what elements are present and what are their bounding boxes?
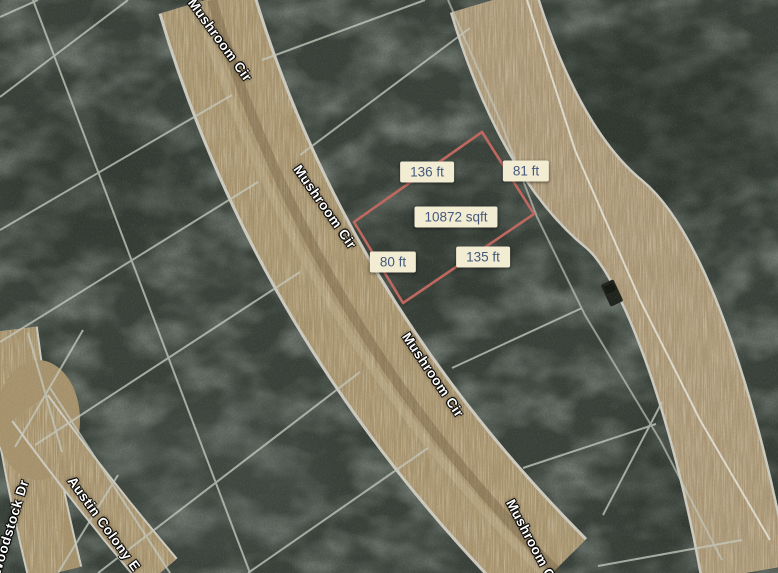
satellite-map-canvas[interactable]: Mushroom Cir Mushroom Cir Mushroom Cir M… <box>0 0 778 573</box>
measurement-label-top-edge: 136 ft <box>400 162 454 183</box>
measurement-label-area: 10872 sqft <box>414 207 497 228</box>
measurement-label-bottom-edge: 135 ft <box>456 247 510 268</box>
map-terrain-layer <box>0 0 778 573</box>
measurement-label-right-edge: 81 ft <box>503 161 549 182</box>
grain-dark <box>0 0 778 573</box>
measurement-label-left-edge: 80 ft <box>370 252 416 273</box>
